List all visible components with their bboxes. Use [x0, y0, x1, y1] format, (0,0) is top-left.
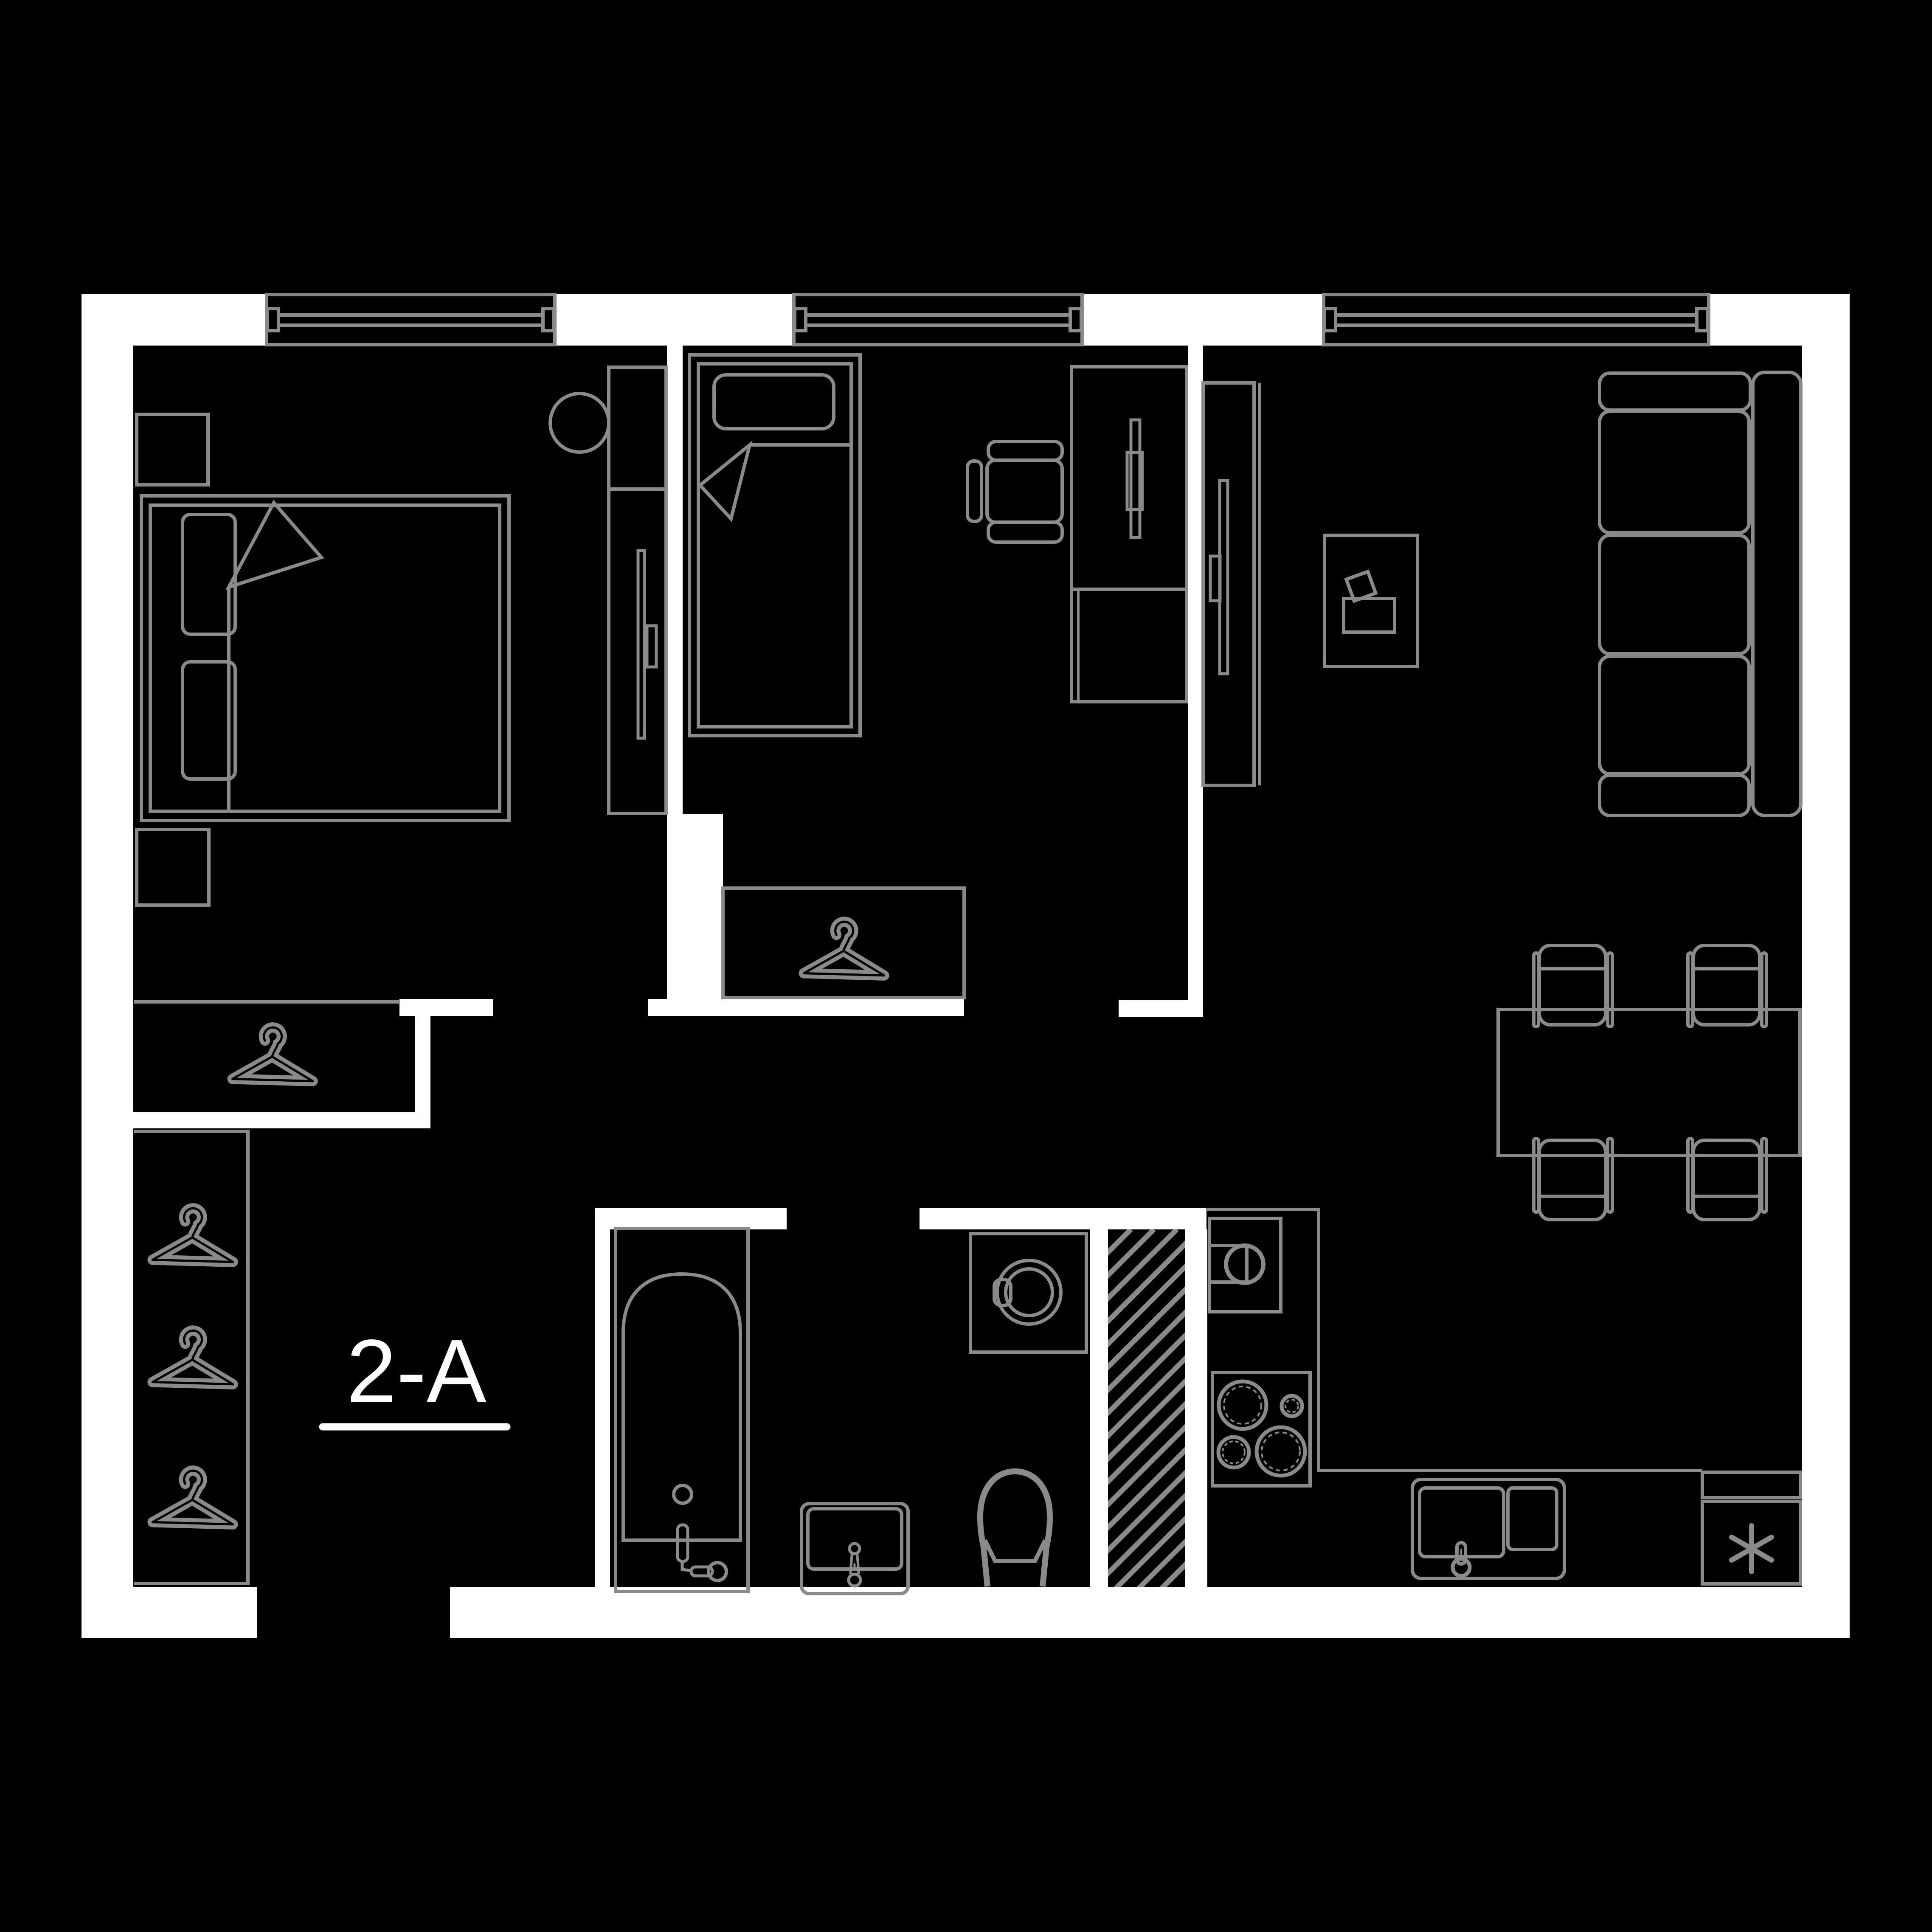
svg-text:2-A: 2-A	[346, 1321, 487, 1421]
